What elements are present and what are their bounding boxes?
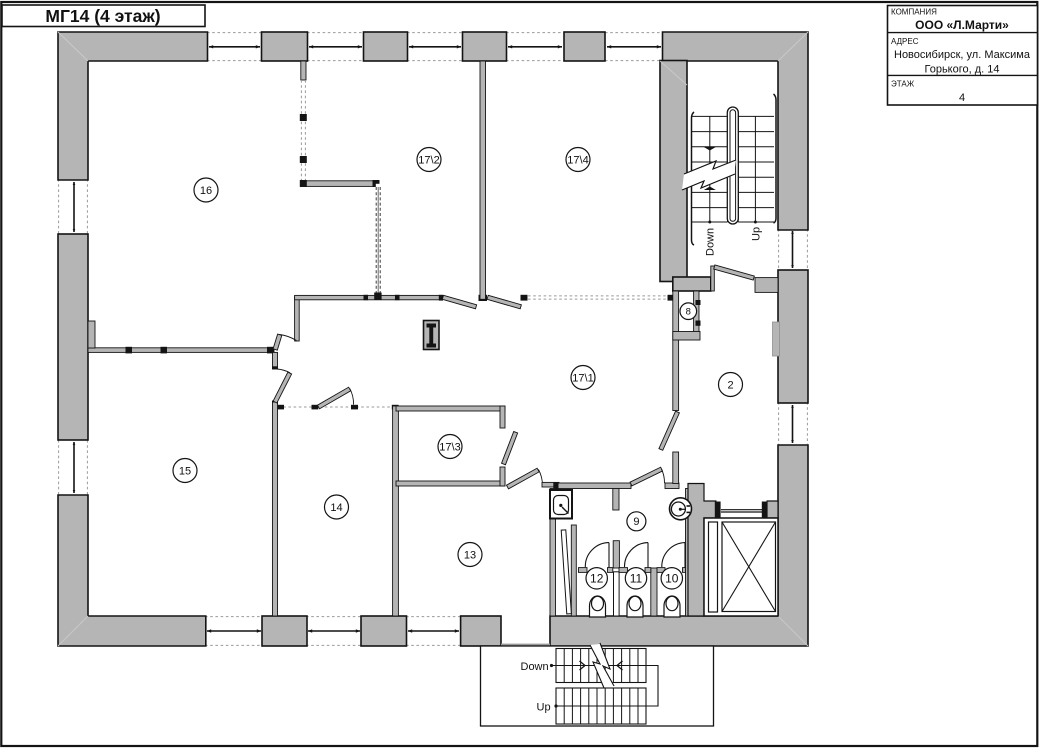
svg-text:4: 4 <box>959 92 965 104</box>
svg-text:Down: Down <box>705 228 717 256</box>
svg-text:10: 10 <box>665 572 679 586</box>
svg-text:ООО «Л.Марти»: ООО «Л.Марти» <box>915 18 1009 32</box>
svg-text:9: 9 <box>633 516 639 528</box>
svg-text:8: 8 <box>686 307 691 318</box>
svg-text:Горького, д. 14: Горького, д. 14 <box>924 64 999 76</box>
svg-text:16: 16 <box>200 185 212 197</box>
svg-text:Down: Down <box>521 661 549 673</box>
svg-text:Up: Up <box>537 702 551 714</box>
svg-text:17\3: 17\3 <box>439 442 460 454</box>
svg-text:КОМПАНИЯ: КОМПАНИЯ <box>891 8 937 17</box>
svg-text:14: 14 <box>330 502 342 514</box>
svg-text:11: 11 <box>630 572 643 586</box>
svg-text:15: 15 <box>179 466 191 478</box>
svg-text:2: 2 <box>727 380 733 392</box>
svg-text:АДРЕС: АДРЕС <box>891 37 919 46</box>
svg-text:17\2: 17\2 <box>418 155 439 167</box>
svg-text:Новосибирск, ул. Максима: Новосибирск, ул. Максима <box>894 49 1031 61</box>
svg-text:Up: Up <box>751 227 763 241</box>
svg-text:13: 13 <box>464 550 476 562</box>
svg-text:17\1: 17\1 <box>572 373 593 385</box>
svg-text:17\4: 17\4 <box>567 155 588 167</box>
svg-text:12: 12 <box>590 572 604 586</box>
svg-text:МГ14 (4 этаж): МГ14 (4 этаж) <box>45 6 160 26</box>
svg-text:ЭТАЖ: ЭТАЖ <box>891 80 915 89</box>
